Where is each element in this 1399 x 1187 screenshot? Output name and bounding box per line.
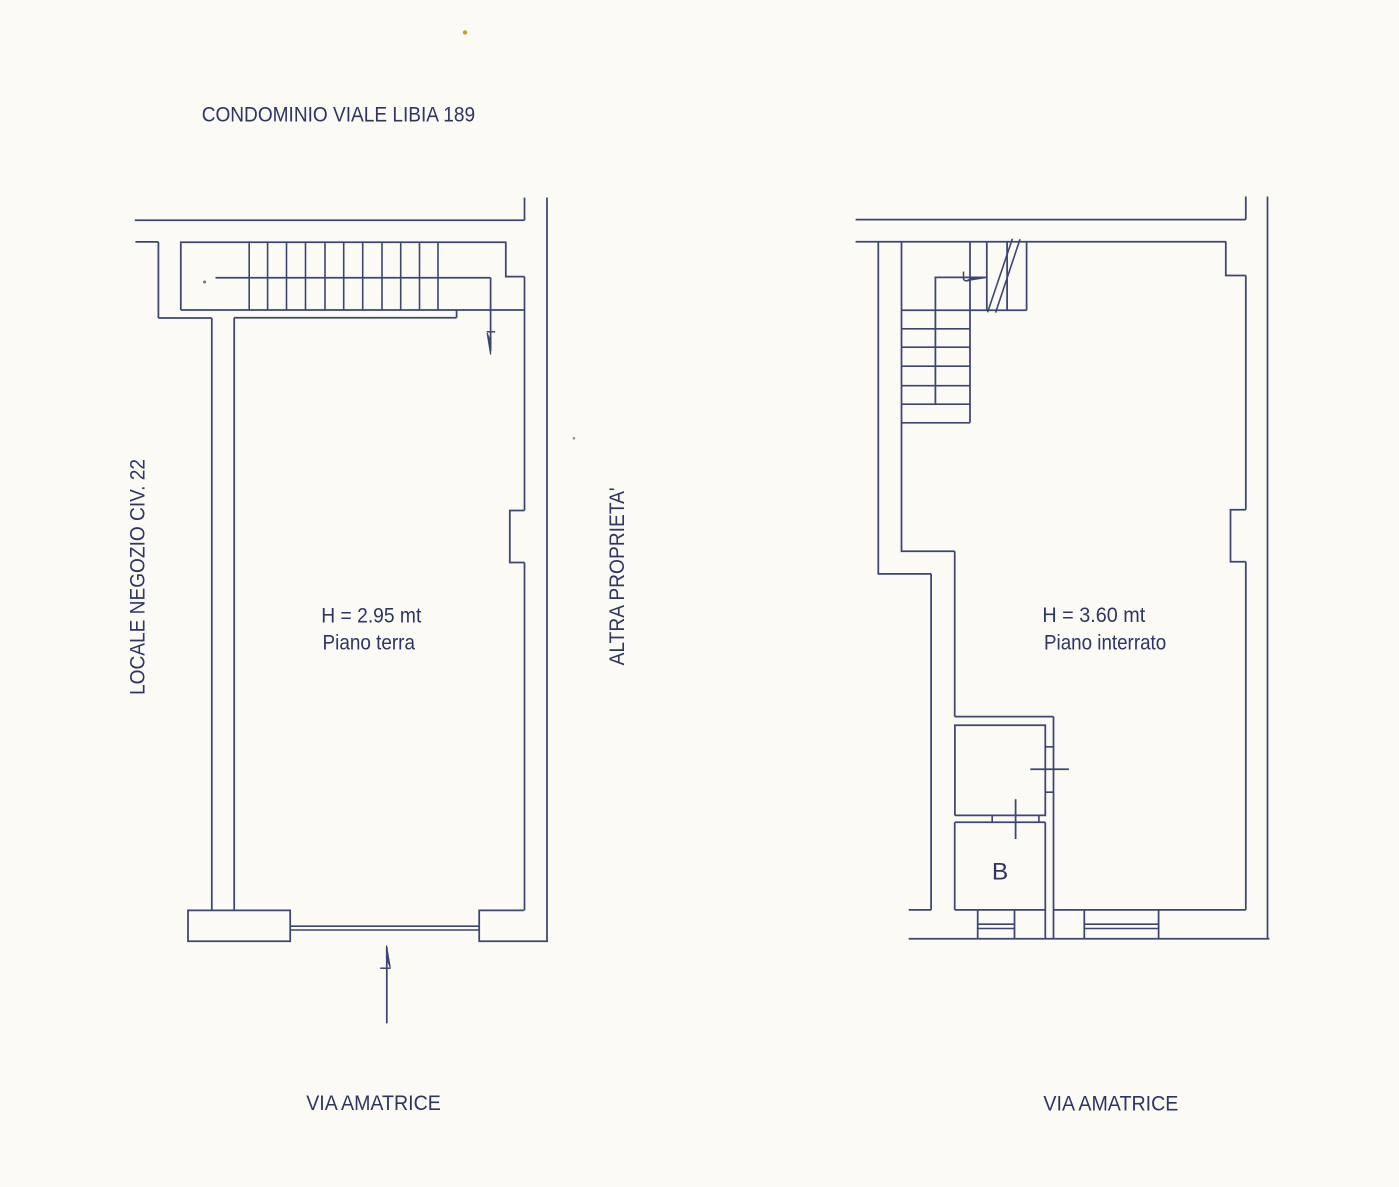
svg-text:H = 3.60 mt: H = 3.60 mt [1042, 603, 1145, 627]
svg-text:H = 2.95 mt: H = 2.95 mt [321, 604, 421, 628]
svg-text:VIA AMATRICE: VIA AMATRICE [1043, 1091, 1178, 1115]
svg-text:B: B [992, 859, 1008, 886]
svg-text:Piano terra: Piano terra [323, 630, 416, 654]
svg-text:LOCALE NEGOZIO CIV. 22: LOCALE NEGOZIO CIV. 22 [127, 459, 150, 695]
svg-text:Piano interrato: Piano interrato [1044, 630, 1166, 654]
svg-text:ALTRA PROPRIETA': ALTRA PROPRIETA' [606, 487, 629, 665]
svg-text:CONDOMINIO VIALE LIBIA 189: CONDOMINIO VIALE LIBIA 189 [202, 103, 475, 126]
svg-text:VIA AMATRICE: VIA AMATRICE [306, 1091, 441, 1115]
